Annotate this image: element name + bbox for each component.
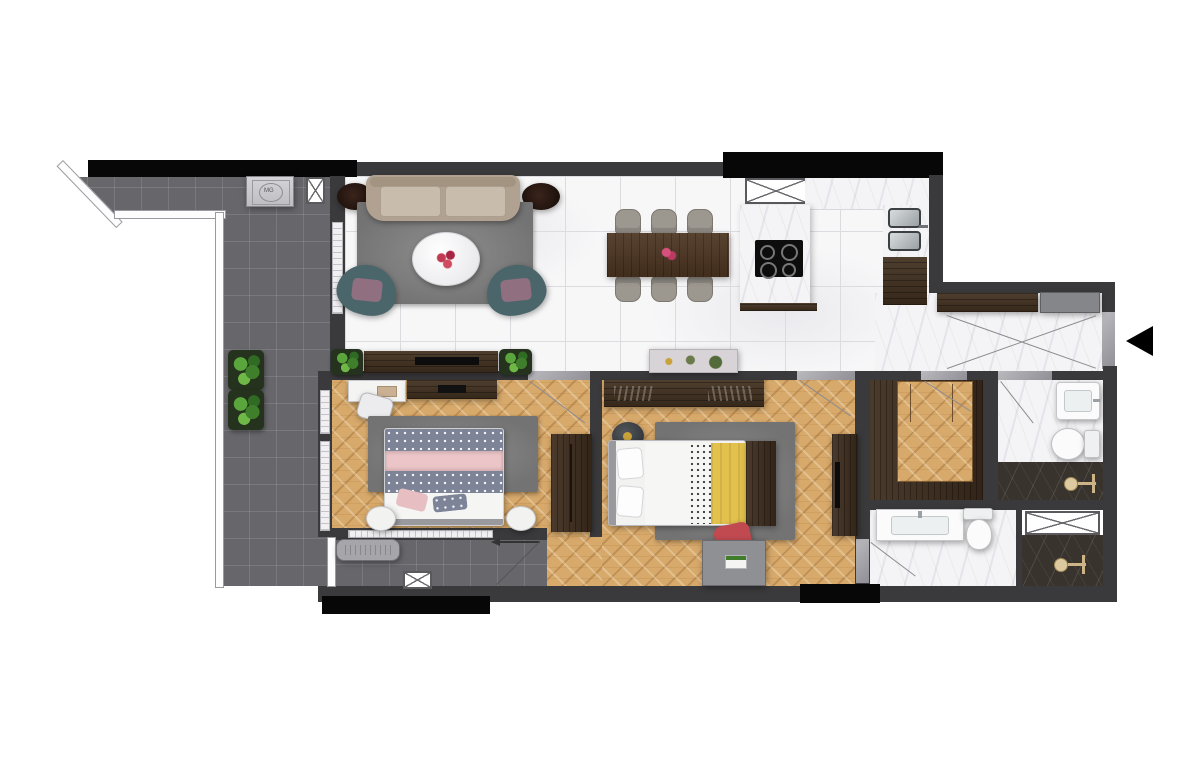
- toilet1-tank: [1084, 430, 1100, 458]
- burner-1: [760, 245, 775, 260]
- wardrobe1-handle: [570, 444, 572, 522]
- wall-hall-right: [1102, 287, 1115, 314]
- cabinet-below-sink: [883, 257, 927, 305]
- balcony-terrace-floor: [60, 160, 335, 590]
- hall-shoe-cabinet: [1040, 292, 1100, 313]
- bath-shelf-niche: [1025, 511, 1100, 535]
- bed2-headboard: [609, 441, 616, 525]
- wall-top-balcony: [88, 160, 355, 177]
- balcony-railing-vertical: [215, 212, 224, 588]
- bedroom1-wardrobe: [551, 434, 592, 532]
- sink2-faucet: [918, 511, 922, 518]
- bedroom1-nightstand-right: [506, 506, 536, 531]
- shower2-head: [1054, 558, 1068, 572]
- hall-console-table: [649, 349, 738, 373]
- coffee-table-flowers: [433, 249, 461, 271]
- desk2-books: [725, 555, 747, 569]
- bathroom1-sink: [1056, 382, 1100, 420]
- loggia-drain-box: [403, 571, 432, 589]
- toilet2-bowl: [966, 519, 992, 550]
- loggia-railing-left: [327, 537, 336, 587]
- bedroom1-door-threshold: [528, 371, 592, 380]
- loggia-door-arrow: [497, 541, 540, 543]
- dining-chair-bottom-2: [651, 276, 677, 302]
- floor-plan: MG: [0, 0, 1200, 768]
- bed1-headboard: [385, 519, 503, 525]
- entrance-arrow-icon: [1126, 326, 1153, 356]
- bathroom2-sink: [876, 509, 964, 541]
- wall-bottom-black-2: [800, 584, 880, 603]
- walkin-closet-inlay: [897, 381, 973, 482]
- bedroom2-tv: [835, 462, 840, 508]
- utility-duct: [306, 177, 325, 204]
- coffee-table: [412, 232, 480, 286]
- dining-chair-top-1: [615, 209, 641, 235]
- bedroom1-window-b: [320, 441, 330, 531]
- bedroom1-nightstand-left: [366, 506, 396, 531]
- entrance-door-threshold: [1102, 312, 1115, 369]
- wall-top-kitchen: [723, 152, 943, 178]
- closet-rod-1: [910, 384, 911, 422]
- wall-closet-bath1: [983, 378, 998, 505]
- bathroom2-door-threshold: [856, 539, 869, 583]
- bedroom2-desk: [702, 540, 766, 586]
- kitchen-sink: [886, 207, 924, 253]
- dining-chair-top-3: [687, 209, 713, 235]
- hall-wardrobe: [937, 293, 1038, 312]
- loggia-glass-door: [348, 530, 493, 538]
- loggia-door-arrowhead: [491, 538, 500, 546]
- bed2-yellow-blanket: [711, 443, 745, 524]
- bedroom1-bed: [384, 428, 504, 526]
- bed2-runner: [689, 443, 713, 524]
- wall-top-living: [345, 162, 725, 176]
- armchair-left-pillow: [351, 277, 383, 302]
- dining-chair-bottom-1: [615, 276, 641, 302]
- dining-chair-bottom-3: [687, 276, 713, 302]
- sink-bowl-1: [888, 208, 921, 228]
- shower1-head: [1064, 477, 1078, 491]
- bedroom2-tv-console: [832, 434, 858, 536]
- wall-bottom-black-1: [322, 596, 490, 614]
- sink2-basin: [891, 516, 949, 535]
- bed1-duvet-top: [385, 429, 503, 451]
- ac-grill: [345, 545, 393, 555]
- tv-plant-right: [499, 349, 532, 375]
- sink1-faucet: [1093, 399, 1100, 402]
- bedroom2-bench: [746, 441, 776, 526]
- bedroom1-window-a: [320, 390, 330, 434]
- sofa-cushion-1: [380, 186, 441, 217]
- bedroom2-bed: [608, 440, 746, 526]
- bedroom2-bookshelf: [604, 380, 764, 407]
- bed2-pillow-1: [616, 447, 645, 480]
- burner-2: [781, 244, 798, 261]
- books-right: [708, 386, 752, 401]
- bedroom2-floor-notch: [547, 537, 602, 590]
- sink-bowl-2: [888, 231, 921, 251]
- bathroom1-door-threshold: [998, 371, 1052, 380]
- balcony-plant-1: [228, 350, 264, 390]
- dresser-detail: [438, 385, 466, 393]
- dining-flowers: [660, 246, 678, 262]
- closet-door-threshold: [921, 371, 967, 380]
- bathroom1-toilet: [1051, 427, 1103, 461]
- bathroom2-toilet: [962, 508, 996, 552]
- sink1-basin: [1064, 390, 1092, 412]
- dining-table: [607, 233, 729, 277]
- washing-machine: MG: [246, 176, 294, 207]
- bedroom1-dresser: [407, 380, 497, 399]
- tv-plant-left: [331, 349, 363, 375]
- sink-faucet: [919, 225, 928, 228]
- bed1-pink-runner: [385, 451, 503, 471]
- shower2-valve: [1082, 555, 1085, 574]
- balcony-railing-horizontal: [114, 210, 226, 219]
- dining-chair-top-2: [651, 209, 677, 235]
- ac-outdoor-unit: [336, 539, 400, 561]
- fridge-box: [745, 178, 807, 204]
- washer-label: MG: [264, 188, 274, 194]
- cooktop: [755, 240, 803, 277]
- wall-kitchen-right: [929, 175, 943, 287]
- books-left: [614, 386, 654, 401]
- wall-pillar-1: [330, 160, 357, 177]
- toilet1-bowl: [1051, 428, 1085, 460]
- wall-bath2-shower-divider: [1016, 508, 1022, 588]
- wall-right-outer: [1103, 366, 1117, 602]
- tv-console: [364, 351, 498, 373]
- bedroom2-door-threshold: [797, 371, 855, 380]
- sofa: [366, 175, 520, 221]
- console-decor: [658, 354, 730, 369]
- kitchen-counter-edge: [740, 303, 817, 311]
- bed2-pillow-2: [616, 485, 645, 518]
- shower1-valve: [1092, 474, 1095, 493]
- armchair-right-pillow: [500, 277, 532, 302]
- burner-3: [760, 262, 777, 279]
- balcony-plant-2: [228, 390, 264, 430]
- tv-screen: [415, 357, 479, 365]
- sofa-cushion-2: [445, 186, 506, 217]
- closet-rod-2: [952, 384, 953, 422]
- burner-4: [782, 263, 796, 277]
- bed2-sheet: [645, 443, 689, 524]
